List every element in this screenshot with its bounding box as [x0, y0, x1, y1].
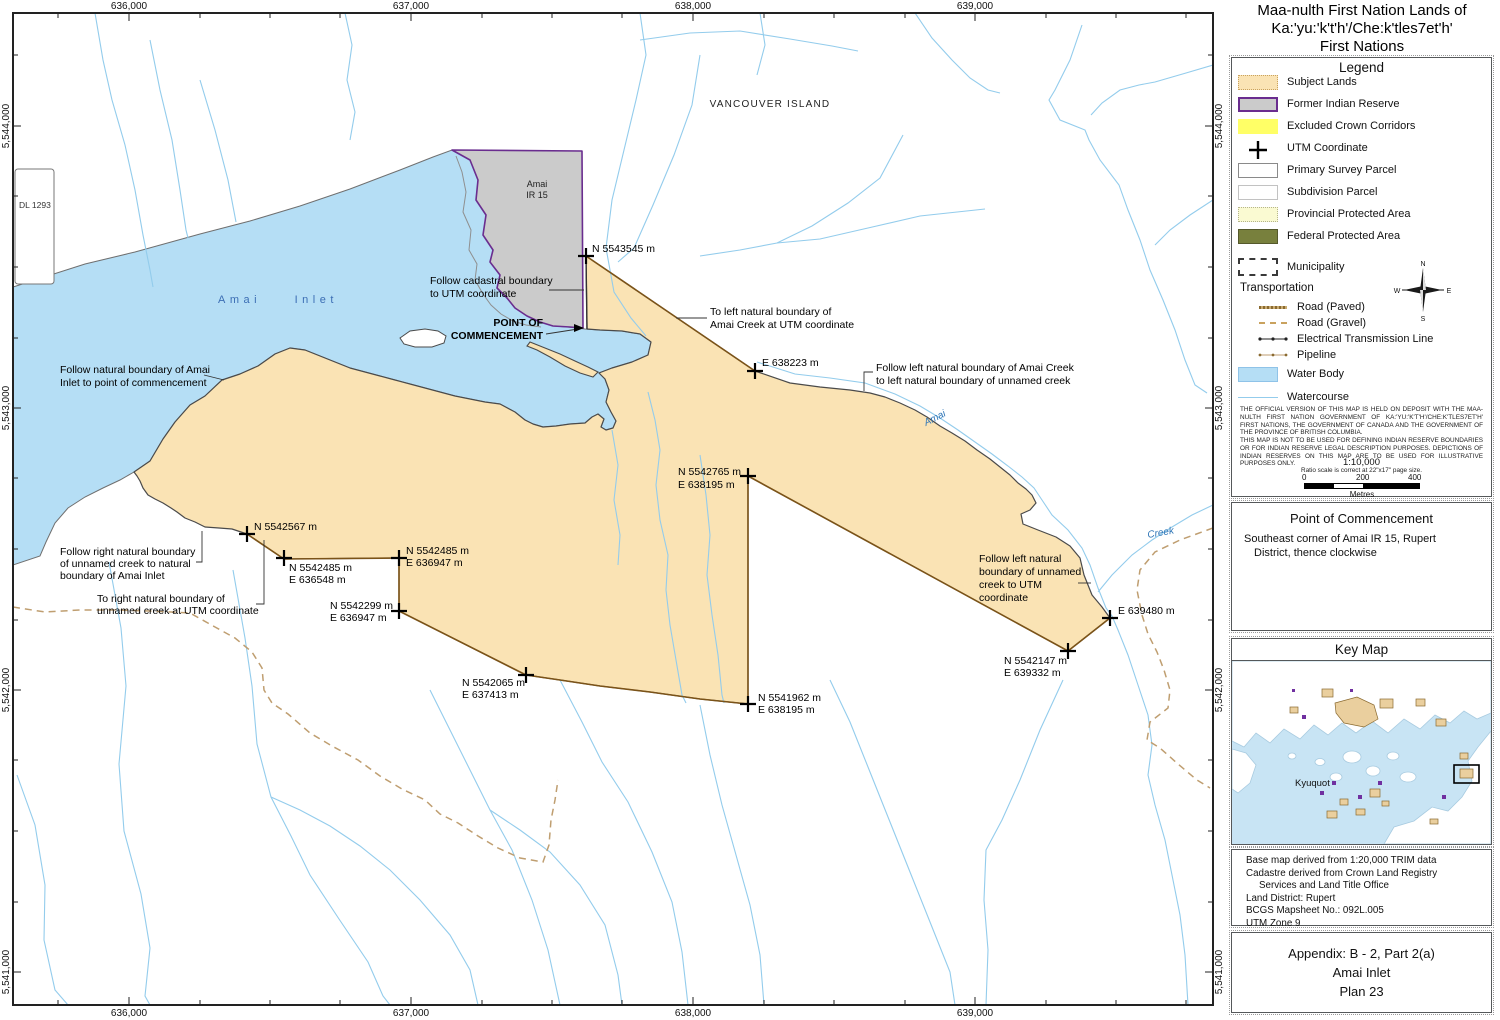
- svg-text:5,542,000: 5,542,000: [1, 667, 12, 712]
- legend-item-subdivision-parcel: Subdivision Parcel: [1238, 181, 1378, 203]
- legend-item-former-indian-reserve: Former Indian Reserve: [1238, 93, 1400, 115]
- scale-tick-200: 200: [1356, 473, 1369, 482]
- sheet-title: Maa-nulth First Nation Lands of Ka:'yu:'…: [1236, 2, 1488, 56]
- base-info-body: Base map derived from 1:20,000 TRIM data…: [1232, 850, 1491, 931]
- compass-e: E: [1447, 288, 1452, 295]
- svg-text:of unnamed creek to natural: of unnamed creek to natural: [60, 558, 191, 570]
- svg-text:to UTM coordinate: to UTM coordinate: [430, 288, 517, 300]
- svg-text:Follow right natural boundary: Follow right natural boundary: [60, 546, 196, 558]
- svg-text:N 5542765 m: N 5542765 m: [678, 466, 741, 478]
- legend-item-utm-coordinate: UTM Coordinate: [1238, 137, 1368, 159]
- svg-text:636,000: 636,000: [111, 1, 148, 12]
- svg-text:E 637413 m: E 637413 m: [462, 689, 519, 701]
- svg-text:E 639332 m: E 639332 m: [1004, 667, 1061, 679]
- label-vancouver-island: VANCOUVER ISLAND: [710, 99, 831, 110]
- map-canvas: VANCOUVER ISLAND Amai Inlet Amai Creek D…: [0, 0, 1228, 1020]
- legend-item-federal-area: Federal Protected Area: [1238, 225, 1400, 247]
- key-map-title: Key Map: [1232, 639, 1491, 661]
- svg-text:Follow cadastral boundary: Follow cadastral boundary: [430, 275, 553, 287]
- svg-text:639,000: 639,000: [957, 1, 994, 12]
- compass-w: W: [1394, 288, 1401, 295]
- scale-tick-400: 400: [1408, 473, 1421, 482]
- legend-item-excluded-corridors: Excluded Crown Corridors: [1238, 115, 1415, 137]
- scale-tick-0: 0: [1302, 473, 1306, 482]
- svg-text:5,542,000: 5,542,000: [1214, 667, 1225, 712]
- utm-cross-icon: [1238, 141, 1278, 156]
- scale-unit: Metres: [1304, 490, 1420, 499]
- svg-text:boundary of Amai Inlet: boundary of Amai Inlet: [60, 570, 165, 582]
- legend-disclaimer-1: THE OFFICIAL VERSION OF THIS MAP IS HELD…: [1240, 406, 1483, 437]
- excluded-corridors-swatch: [1238, 119, 1278, 134]
- svg-text:creek to UTM: creek to UTM: [979, 579, 1042, 591]
- svg-text:5,543,000: 5,543,000: [1214, 385, 1225, 430]
- svg-text:N 5543545 m: N 5543545 m: [592, 243, 655, 255]
- compass-s: S: [1421, 316, 1426, 323]
- compass-n: N: [1420, 261, 1425, 268]
- legend-item-subject-lands: Subject Lands: [1238, 71, 1357, 93]
- legend-item-water-body: Water Body: [1238, 363, 1344, 385]
- svg-text:637,000: 637,000: [393, 1008, 430, 1019]
- svg-text:5,543,000: 5,543,000: [1, 385, 12, 430]
- subject-lands-swatch: [1238, 75, 1278, 90]
- legend-item-provincial-area: Provincial Protected Area: [1238, 203, 1411, 225]
- svg-text:unnamed creek at UTM coordinat: unnamed creek at UTM coordinate: [97, 605, 259, 617]
- svg-text:638,000: 638,000: [675, 1, 712, 12]
- svg-text:638,000: 638,000: [675, 1008, 712, 1019]
- north-arrow: N S W E: [1392, 255, 1454, 325]
- label-dl1293: DL 1293: [19, 200, 51, 210]
- label-amai-inlet: Amai Inlet: [218, 294, 338, 306]
- legend-item-municipality: Municipality: [1238, 254, 1344, 280]
- appendix-body: Appendix: B - 2, Part 2(a) Amai Inlet Pl…: [1232, 933, 1491, 1001]
- map-sheet: VANCOUVER ISLAND Amai Inlet Amai Creek D…: [0, 0, 1500, 1020]
- svg-text:E 638195 m: E 638195 m: [758, 704, 815, 716]
- key-map-box: Key Map: [1231, 638, 1492, 845]
- provincial-area-swatch: [1238, 207, 1278, 222]
- appendix-box: Appendix: B - 2, Part 2(a) Amai Inlet Pl…: [1231, 932, 1492, 1013]
- svg-text:E 636947 m: E 636947 m: [330, 612, 387, 624]
- legend-item-pipeline: Pipeline: [1258, 347, 1336, 363]
- svg-text:N 5542485 m: N 5542485 m: [406, 545, 469, 557]
- municipality-swatch: [1238, 258, 1278, 276]
- sheet-title-line2: Ka:'yu:'k't'h'/Che:k'tles7et'h': [1236, 20, 1488, 38]
- svg-text:E 638195 m: E 638195 m: [678, 479, 735, 491]
- svg-text:5,541,000: 5,541,000: [1214, 949, 1225, 994]
- former-reserve-swatch: [1238, 97, 1278, 112]
- legend-item-road-gravel: Road (Gravel): [1258, 315, 1366, 331]
- scale-bar-segments: [1304, 483, 1420, 489]
- sheet-title-line1: Maa-nulth First Nation Lands of: [1236, 2, 1488, 20]
- legend-item-primary-parcel: Primary Survey Parcel: [1238, 159, 1396, 181]
- svg-text:E 636947 m: E 636947 m: [406, 557, 463, 569]
- watercourse-icon: [1238, 397, 1278, 398]
- legend-item-watercourse: Watercourse: [1238, 388, 1349, 406]
- legend-box: Legend Subject Lands Former Indian Reser…: [1231, 57, 1492, 497]
- svg-text:5,544,000: 5,544,000: [1, 103, 12, 148]
- svg-text:N 5542299 m: N 5542299 m: [330, 600, 393, 612]
- primary-parcel-swatch: [1238, 163, 1278, 178]
- svg-text:E 638223 m: E 638223 m: [762, 357, 819, 369]
- point-of-commencement-box: Point of Commencement Southeast corner o…: [1231, 502, 1492, 631]
- road-paved-icon: [1258, 306, 1288, 309]
- label-ir15-line1: Amai: [527, 179, 548, 189]
- svg-text:coordinate: coordinate: [979, 592, 1028, 604]
- label-ir15-line2: IR 15: [526, 190, 548, 200]
- pipeline-icon: [1258, 351, 1288, 359]
- svg-text:Inlet to point of commencement: Inlet to point of commencement: [60, 377, 207, 389]
- federal-area-swatch: [1238, 229, 1278, 244]
- svg-text:N 5542485 m: N 5542485 m: [289, 562, 352, 574]
- key-map-place-label: Kyuquot: [1295, 778, 1330, 789]
- svg-text:E 636548 m: E 636548 m: [289, 574, 346, 586]
- scale-bar: 0 200 400 Metres: [1304, 473, 1420, 499]
- legend-transportation-heading: Transportation: [1240, 282, 1314, 294]
- key-map-canvas: Kyuquot: [1232, 661, 1491, 844]
- water-body-swatch: [1238, 367, 1278, 382]
- svg-text:N 5542567 m: N 5542567 m: [254, 521, 317, 533]
- dl1293-parcel: [15, 169, 54, 284]
- svg-text:5,541,000: 5,541,000: [1, 949, 12, 994]
- svg-text:To right natural boundary of: To right natural boundary of: [97, 593, 225, 605]
- legend-item-transmission-line: Electrical Transmission Line: [1258, 331, 1433, 347]
- svg-text:Follow natural boundary of Ama: Follow natural boundary of Amai: [60, 364, 210, 376]
- svg-text:boundary of unnamed: boundary of unnamed: [979, 566, 1081, 578]
- svg-text:N 5541962 m: N 5541962 m: [758, 692, 821, 704]
- svg-text:N 5542065 m: N 5542065 m: [462, 677, 525, 689]
- poc-box-title: Point of Commencement: [1232, 511, 1491, 526]
- base-info-box: Base map derived from 1:20,000 TRIM data…: [1231, 849, 1492, 926]
- svg-text:637,000: 637,000: [393, 1, 430, 12]
- svg-text:Follow left natural: Follow left natural: [979, 553, 1061, 565]
- sheet-title-line3: First Nations: [1236, 38, 1488, 56]
- svg-text:N 5542147 m: N 5542147 m: [1004, 655, 1067, 667]
- svg-text:E 639480 m: E 639480 m: [1118, 605, 1175, 617]
- svg-text:Amai Creek at UTM coordinate: Amai Creek at UTM coordinate: [710, 319, 854, 331]
- svg-text:Follow left natural boundary o: Follow left natural boundary of Amai Cre…: [876, 362, 1075, 374]
- svg-text:to left natural boundary of un: to left natural boundary of unnamed cree…: [876, 375, 1071, 387]
- legend-item-road-paved: Road (Paved): [1258, 299, 1365, 315]
- road-gravel-icon: [1258, 322, 1288, 324]
- cadastral-boundary-line: [586, 256, 587, 329]
- label-poc-line1: POINT OF: [493, 317, 543, 329]
- label-poc-line2: COMMENCEMENT: [451, 330, 544, 342]
- svg-text:To left natural boundary of: To left natural boundary of: [710, 306, 831, 318]
- poc-box-body: Southeast corner of Amai IR 15, Rupert D…: [1232, 526, 1491, 560]
- subdivision-parcel-swatch: [1238, 185, 1278, 200]
- svg-text:636,000: 636,000: [111, 1008, 148, 1019]
- svg-text:5,544,000: 5,544,000: [1214, 103, 1225, 148]
- transmission-line-icon: [1258, 335, 1288, 343]
- svg-text:639,000: 639,000: [957, 1008, 994, 1019]
